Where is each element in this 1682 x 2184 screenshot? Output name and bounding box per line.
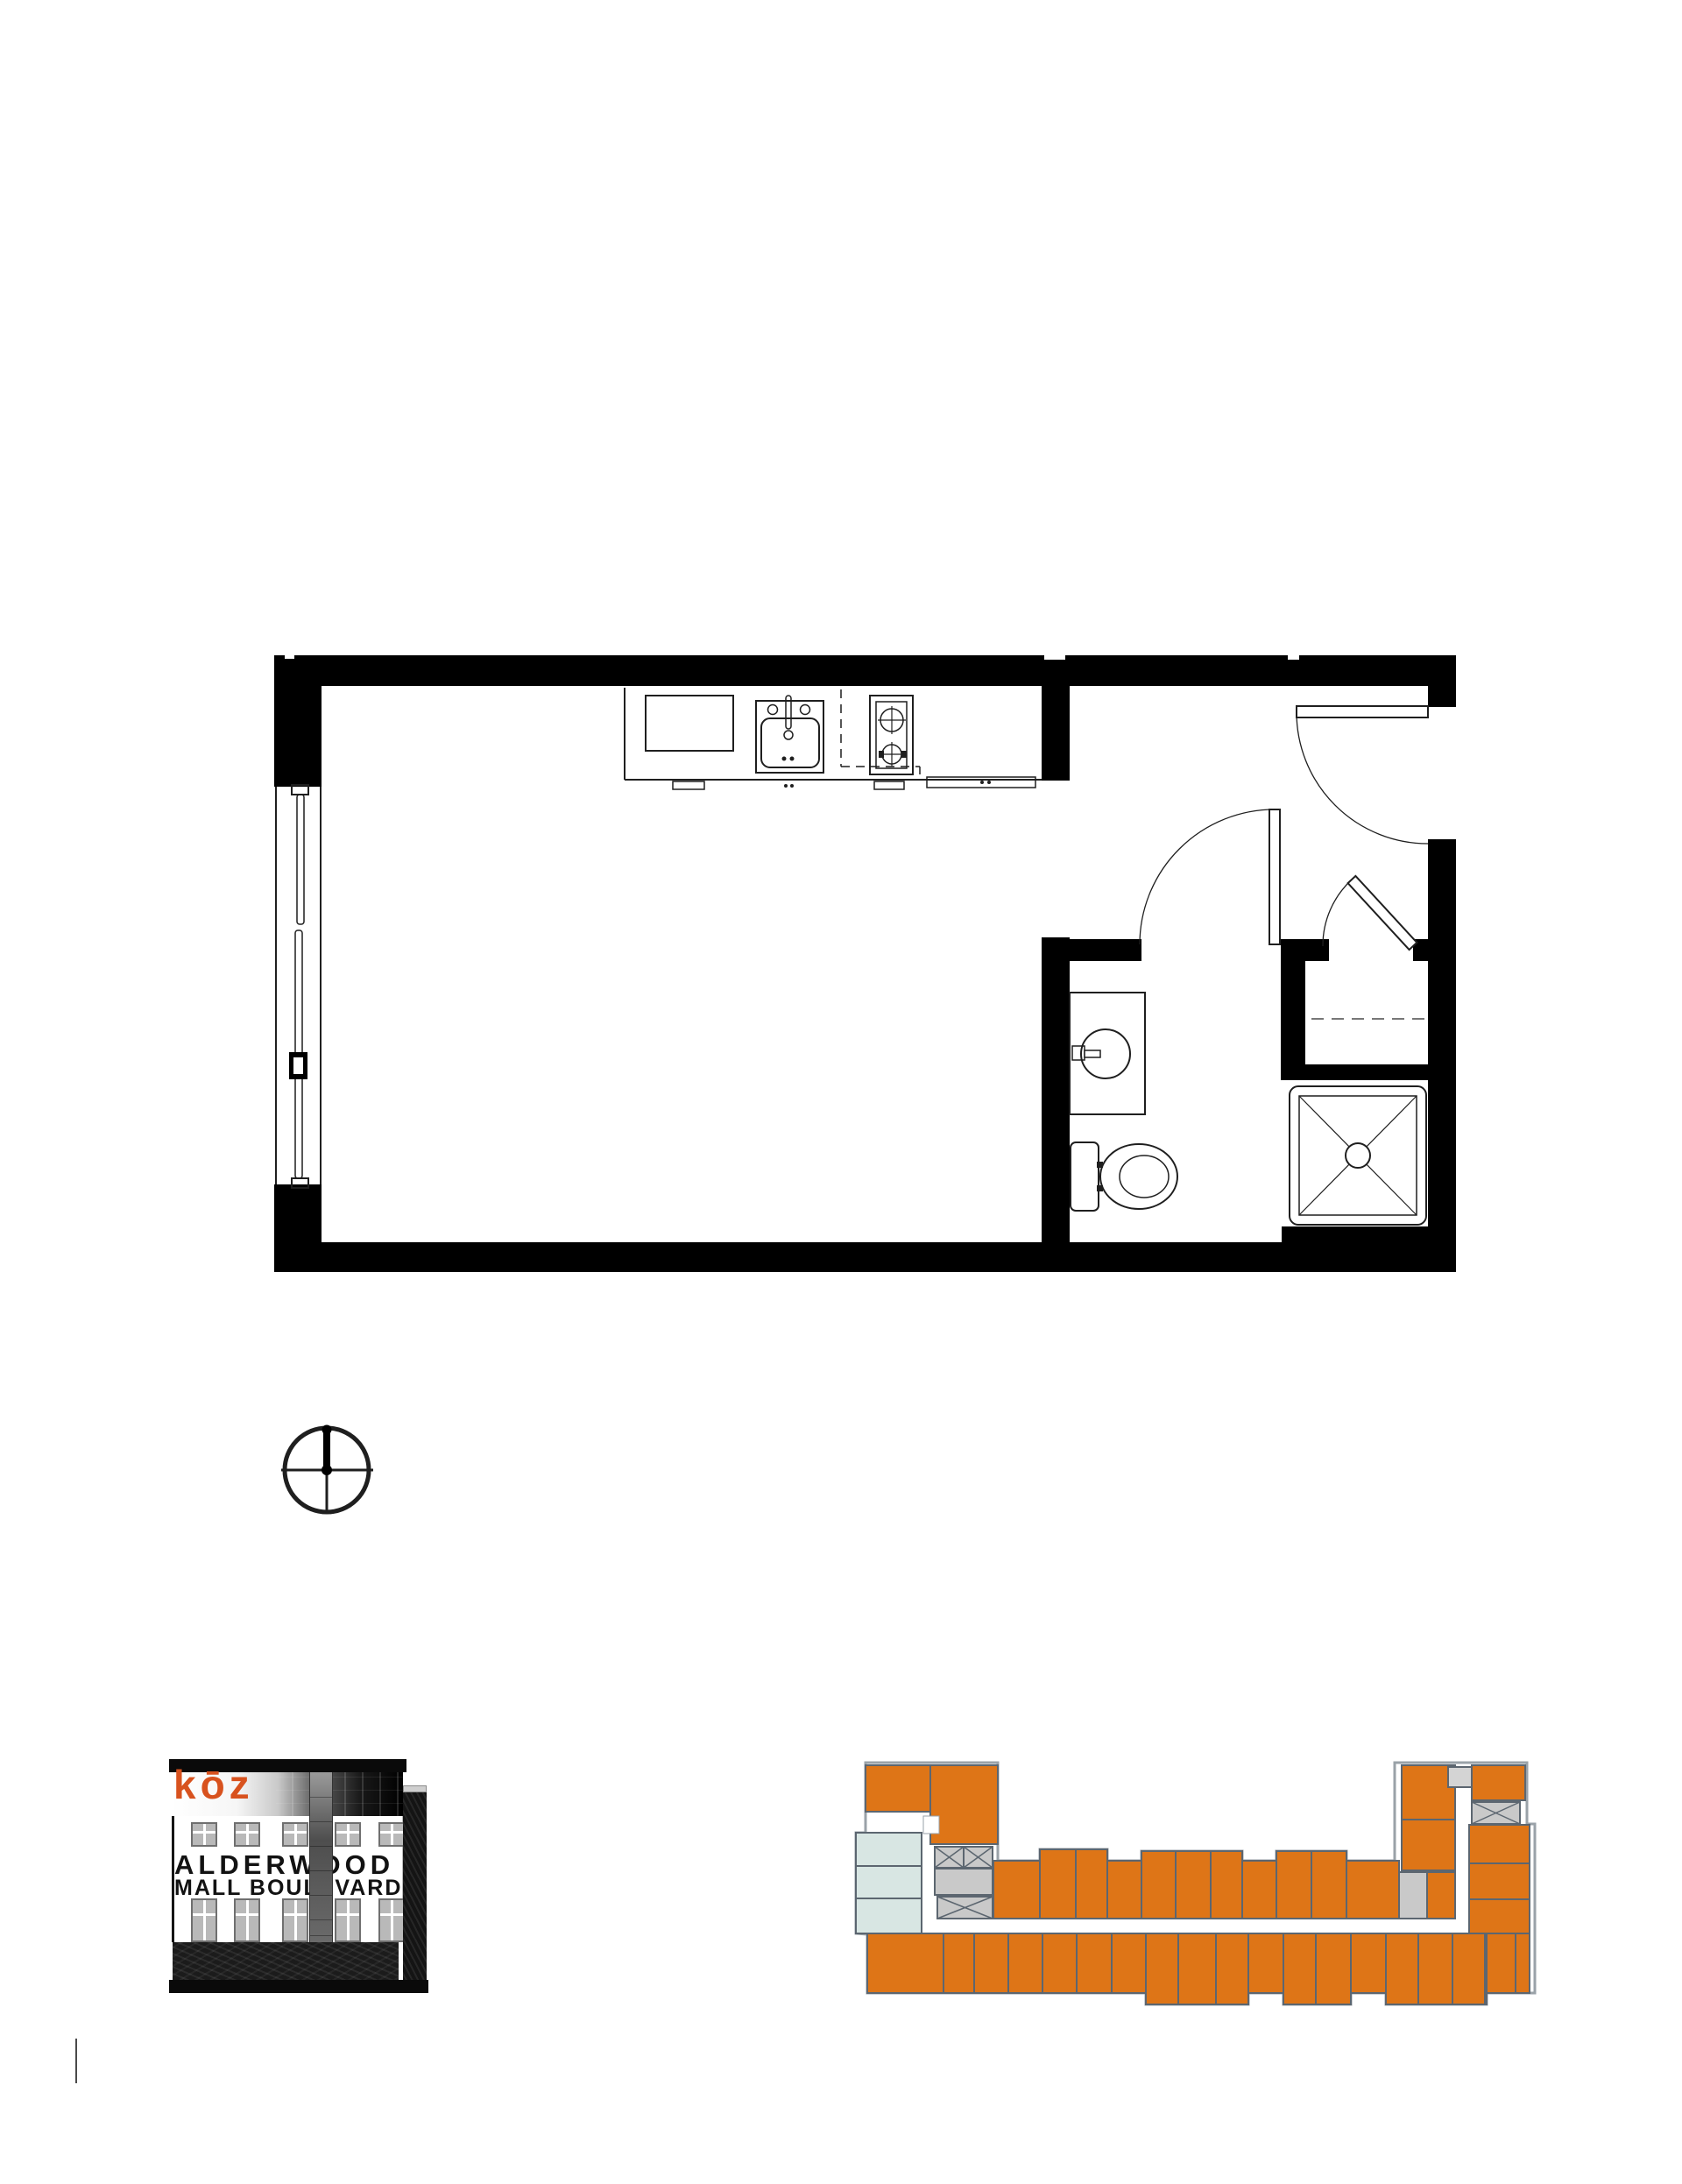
wall-kitchen-east <box>1042 686 1070 781</box>
tower-panel-line <box>310 1821 332 1822</box>
tower-panel-line <box>310 1895 332 1896</box>
logo-side-wall <box>403 1792 427 1987</box>
brand-wordmark: kōz <box>173 1761 254 1808</box>
wall-closet-south <box>1281 1064 1428 1080</box>
wall-bottom <box>274 1242 1282 1272</box>
window-mullion <box>203 1900 206 1940</box>
cabinet-handle-dot <box>784 784 788 788</box>
unit <box>1211 1851 1242 1919</box>
window-mullion <box>246 1900 249 1940</box>
wall-joint-notch <box>285 655 294 659</box>
unit <box>866 1765 930 1812</box>
wall-bath-north-west <box>1070 939 1141 961</box>
window-mullion <box>347 1900 350 1940</box>
faucet-knob <box>768 705 778 715</box>
window-mullion <box>236 1831 258 1834</box>
utility-box <box>1448 1767 1472 1787</box>
window-mullion <box>347 1824 350 1845</box>
faucet-spout-end <box>784 731 793 739</box>
logo-bottom-bar <box>169 1980 428 1993</box>
unit <box>1427 1872 1455 1919</box>
wall-top <box>274 655 1456 686</box>
wall-left-top-pier <box>274 686 322 787</box>
tower-panel-line <box>310 1870 332 1871</box>
glass-texture <box>276 1772 403 1816</box>
kitchen-sink-outer <box>756 701 823 773</box>
unit <box>1176 1851 1211 1919</box>
building-key-plan <box>854 1761 1537 2017</box>
sink-dot <box>790 757 795 761</box>
unit-blue <box>856 1898 922 1933</box>
vanity-faucet <box>1072 1046 1085 1060</box>
wall-left-bottom-pier <box>274 1184 322 1242</box>
wall-bath-north-mid <box>1281 939 1329 961</box>
toilet-tank <box>1071 1142 1099 1211</box>
shower-drain <box>1346 1143 1370 1168</box>
bath-door-leaf <box>1269 809 1280 944</box>
wall-right-main <box>1428 839 1456 1226</box>
unit <box>930 1765 998 1844</box>
tower-panel-line <box>310 1919 332 1920</box>
cooktop-knob <box>879 751 884 758</box>
facade-window <box>191 1822 217 1847</box>
unit-row-bump <box>1146 1933 1248 2004</box>
window-mullion <box>203 1824 206 1845</box>
toilet-bowl-inner <box>1120 1156 1169 1198</box>
utility-box <box>1399 1872 1427 1919</box>
window-mullion <box>336 1913 359 1916</box>
unit-blue <box>856 1866 922 1898</box>
faucet-knob <box>801 705 810 715</box>
facade-window <box>378 1822 405 1847</box>
window-mullion <box>284 1831 307 1834</box>
unit <box>993 1861 1040 1919</box>
kitchen-sink-basin <box>761 718 819 767</box>
toilet-hinge <box>1097 1162 1103 1168</box>
unit <box>1076 1849 1107 1919</box>
cabinet-drawer <box>673 781 704 789</box>
closet-door-swing <box>1323 880 1352 946</box>
closet-door-leaf <box>1348 876 1417 950</box>
koz-logo: kōz ALDERWOOD MALL BOULEVARD <box>169 1759 428 1996</box>
sink-dot <box>782 757 787 761</box>
facade-window <box>282 1822 308 1847</box>
vanity-faucet-spout <box>1085 1050 1100 1057</box>
tower-panel-line <box>310 1935 332 1936</box>
facade-window <box>191 1898 217 1942</box>
wall-joint-notch <box>1288 655 1299 660</box>
logo-side-cap <box>403 1785 427 1792</box>
unit <box>1346 1861 1399 1919</box>
wall-right-top <box>1428 686 1456 707</box>
facade-window <box>335 1898 361 1942</box>
window-mullion <box>380 1831 403 1834</box>
unit-row-bump <box>1386 1933 1487 2004</box>
facade-window <box>234 1898 260 1942</box>
window-mullion <box>294 1900 297 1940</box>
wall-closet-divider <box>1281 961 1305 1064</box>
facade-window <box>282 1898 308 1942</box>
unit <box>1107 1861 1141 1919</box>
cabinet-handle-dot <box>980 781 984 784</box>
north-arrow-dot <box>322 1425 332 1435</box>
unit <box>1402 1820 1455 1870</box>
fridge <box>646 696 733 751</box>
north-arrow-dot <box>322 1465 332 1475</box>
cabinet-handle-dot <box>790 784 794 788</box>
toilet-bowl <box>1100 1144 1177 1209</box>
window-mullion <box>284 1913 307 1916</box>
unit-blue <box>856 1833 922 1866</box>
subject-unit-notch <box>923 1816 939 1834</box>
facade-window <box>378 1898 405 1942</box>
cooktop-knob <box>901 751 907 758</box>
unit <box>1276 1851 1311 1919</box>
window-panel <box>297 795 304 924</box>
logo-stair-tower <box>309 1772 333 1942</box>
unit <box>1402 1765 1455 1820</box>
window-mullion <box>391 1824 393 1845</box>
wall-bottom-shower <box>1282 1226 1456 1272</box>
unit-row-bump <box>1283 1933 1351 2004</box>
window-mullion <box>246 1824 249 1845</box>
window-mullion <box>391 1900 393 1940</box>
window-mullion <box>236 1913 258 1916</box>
facade-window <box>234 1822 260 1847</box>
window-mullion <box>193 1913 216 1916</box>
cabinet-drawer <box>874 781 904 789</box>
tower-panel-line <box>310 1846 332 1847</box>
window-handle-inner <box>293 1057 303 1074</box>
property-name-line2: MALL BOULEVARD <box>174 1876 400 1901</box>
unit <box>1141 1851 1176 1919</box>
utility-box <box>935 1869 993 1895</box>
window-mullion <box>380 1913 403 1916</box>
wall-bath-west <box>1042 937 1070 1242</box>
floor-plan-sheet: kōz ALDERWOOD MALL BOULEVARD <box>0 0 1682 2184</box>
window-mullion <box>294 1824 297 1845</box>
tower-panel-line <box>310 1797 332 1798</box>
window-mullion <box>336 1831 359 1834</box>
unit <box>1469 1825 1530 1933</box>
unit <box>1040 1849 1076 1919</box>
unit <box>1242 1861 1276 1919</box>
wall-joint-notch <box>1044 655 1065 660</box>
unit <box>1311 1851 1346 1919</box>
bath-door-swing <box>1140 809 1275 944</box>
entry-door-swing <box>1297 712 1428 844</box>
entry-door-leaf <box>1297 706 1428 717</box>
cabinet-handle-dot <box>987 781 991 784</box>
window-mullion <box>193 1831 216 1834</box>
facade-window <box>335 1822 361 1847</box>
toilet-hinge <box>1097 1185 1103 1191</box>
unit <box>1472 1765 1525 1800</box>
